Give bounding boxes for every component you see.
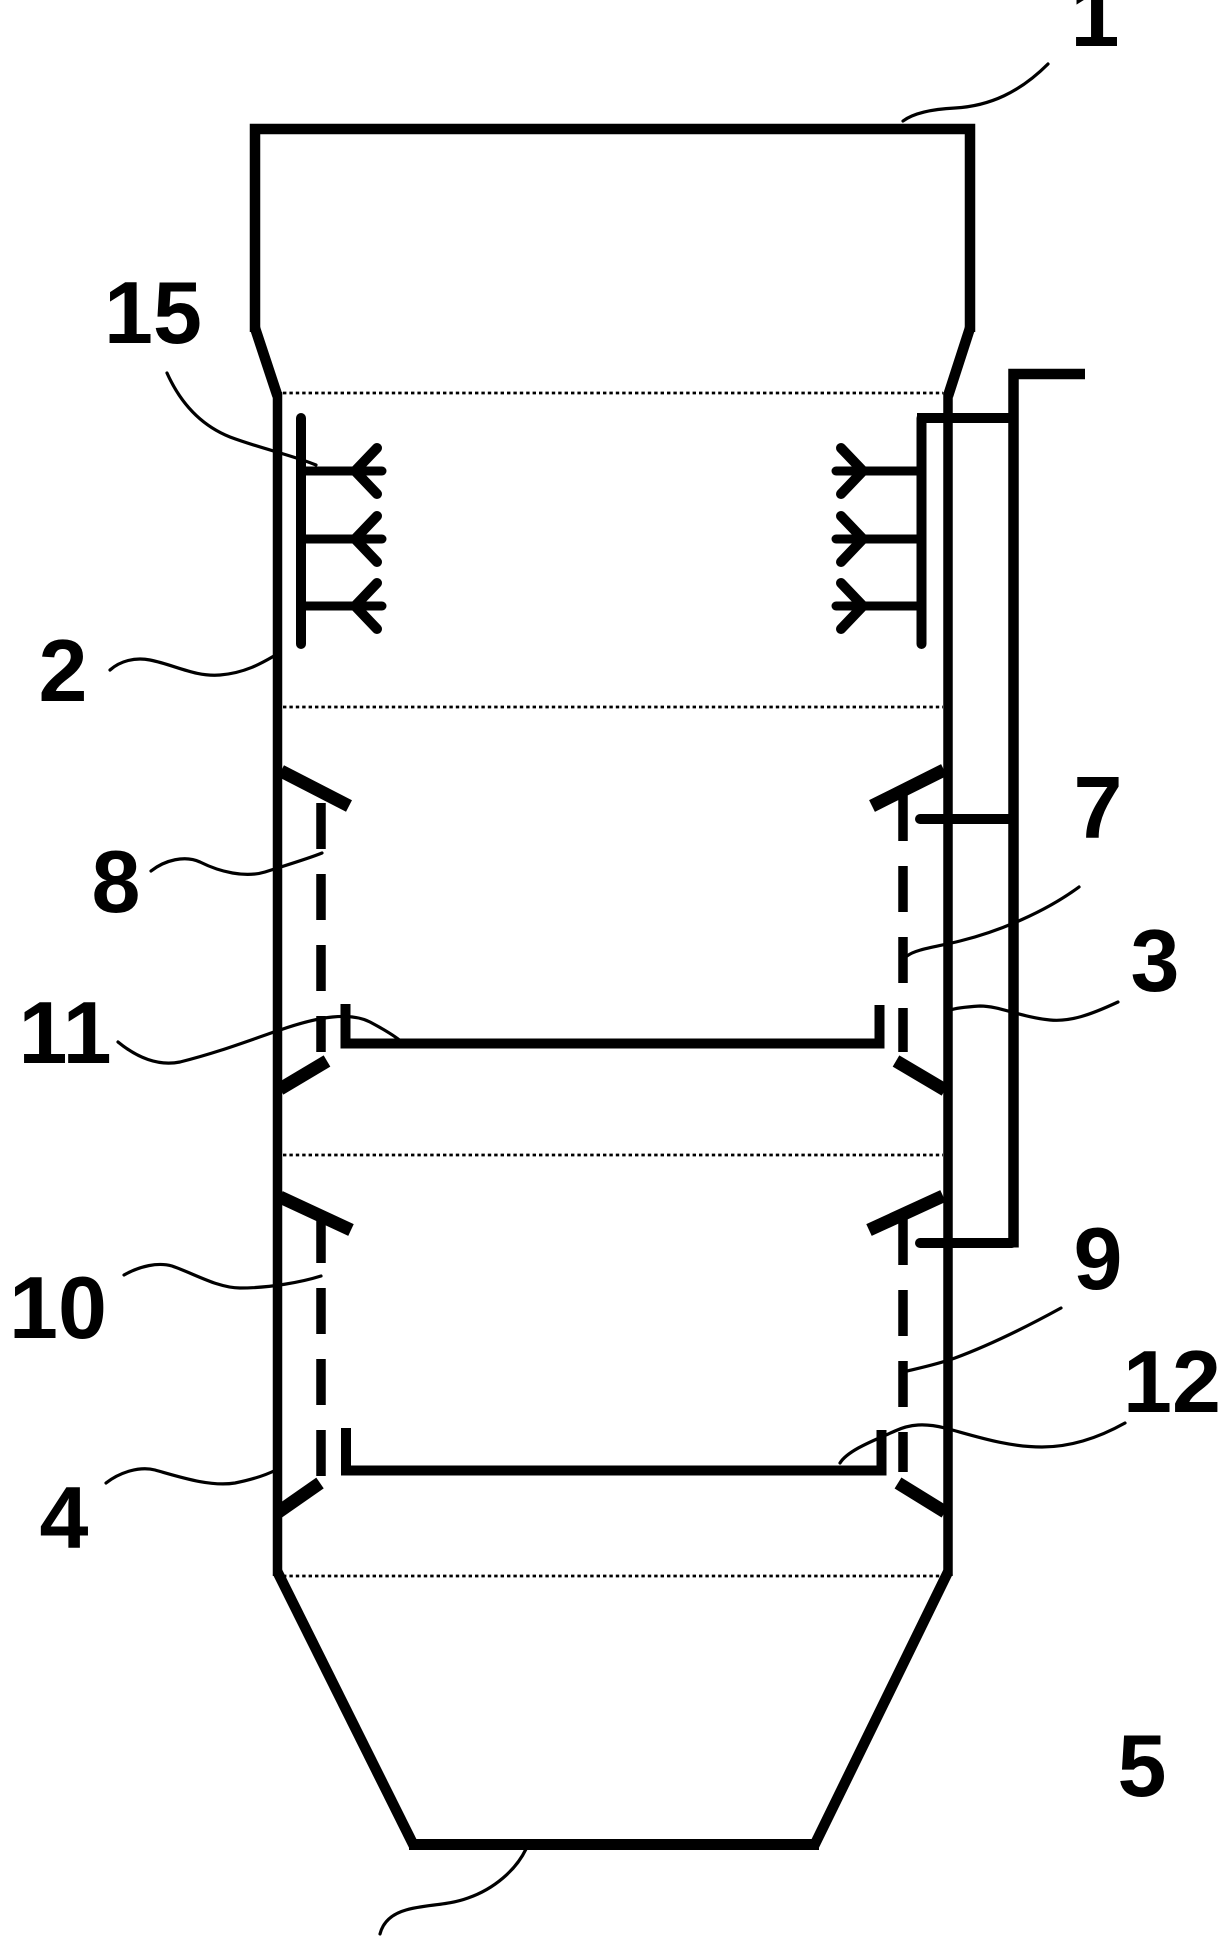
svg-text:8: 8 bbox=[92, 832, 141, 931]
svg-text:10: 10 bbox=[9, 1258, 107, 1357]
svg-text:4: 4 bbox=[40, 1468, 89, 1567]
svg-text:11: 11 bbox=[18, 983, 111, 1082]
svg-text:1: 1 bbox=[1071, 0, 1120, 65]
svg-text:7: 7 bbox=[1074, 758, 1123, 857]
svg-text:15: 15 bbox=[104, 263, 202, 362]
svg-text:12: 12 bbox=[1123, 1332, 1221, 1431]
svg-text:2: 2 bbox=[39, 621, 88, 720]
svg-text:5: 5 bbox=[1118, 1716, 1167, 1815]
svg-text:3: 3 bbox=[1131, 911, 1180, 1010]
svg-text:9: 9 bbox=[1074, 1209, 1123, 1308]
